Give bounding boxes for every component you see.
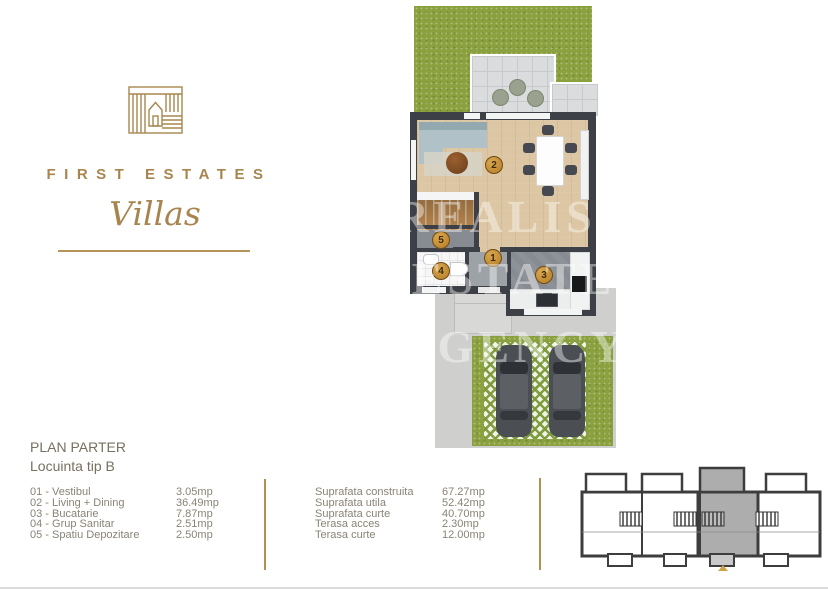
partition-vestibule-kitchen xyxy=(507,252,511,286)
plan-subtitle: Locuinta tip B xyxy=(30,457,126,476)
legend-label: 05 - Spatiu Depozitare xyxy=(30,529,139,541)
coffee-table xyxy=(446,152,468,174)
dining-table xyxy=(536,136,564,186)
sofa xyxy=(419,130,487,148)
stat-value: 12.00mp xyxy=(442,530,485,541)
dining-chair xyxy=(523,165,535,175)
window-bath xyxy=(422,287,446,293)
stove xyxy=(536,293,558,307)
car-windshield xyxy=(500,362,528,374)
car xyxy=(496,345,532,437)
brochure-page: FIRST ESTATES Villas PLAN PARTER Locuint… xyxy=(0,0,828,590)
stat-value: 52.42mp xyxy=(442,498,485,509)
plan-title-block: PLAN PARTER Locuinta tip B xyxy=(30,438,126,476)
dining-chair xyxy=(523,143,535,153)
car-roof xyxy=(500,374,528,409)
brand-name: FIRST ESTATES xyxy=(15,166,295,183)
unit-locator-diagram xyxy=(576,466,826,572)
legend-area: 36.49mp xyxy=(176,498,219,509)
car-windshield xyxy=(553,362,581,374)
terrace-sliding-door xyxy=(486,113,550,119)
plan-title: PLAN PARTER xyxy=(30,438,126,457)
dining-chair xyxy=(565,143,577,153)
room-badge-living: 2 xyxy=(485,156,503,174)
floor-plan: 2 1 3 4 5 REALIST ESTATE AGENCY xyxy=(408,4,620,456)
dining-chair xyxy=(542,186,554,196)
window-left xyxy=(411,140,416,180)
entry-step xyxy=(455,303,511,332)
window-kitchen xyxy=(524,309,582,315)
legend-row: 05 - Spatiu Depozitare 2.50mp xyxy=(30,530,265,541)
entry-door xyxy=(478,287,500,293)
brand-tagline: Villas xyxy=(15,194,295,233)
room-legend: 01 - Vestibul 3.05mp 02 - Living + Dinin… xyxy=(30,487,265,541)
first-estates-emblem-icon xyxy=(128,86,184,136)
pouf-seat xyxy=(527,90,544,107)
room-badge-bucatarie: 3 xyxy=(535,266,553,284)
oven xyxy=(572,276,587,292)
room-badge-grup-sanitar: 4 xyxy=(432,262,450,280)
pouf-seat xyxy=(492,89,509,106)
partition-stairs xyxy=(474,192,479,252)
dining-chair xyxy=(542,125,554,135)
column-divider xyxy=(264,479,266,570)
partition-storage xyxy=(417,225,479,229)
sofa-back xyxy=(419,122,487,130)
window-top xyxy=(464,113,480,119)
stat-row: Terasa curte 12.00mp xyxy=(315,530,545,541)
room-badge-spatiu-depozitare: 5 xyxy=(432,231,450,249)
room-badge-vestibul: 1 xyxy=(484,249,502,267)
sideboard xyxy=(580,130,589,200)
stat-label: Terasa curte xyxy=(315,529,376,541)
entry-terrace xyxy=(454,288,512,334)
car-rear-window xyxy=(500,411,528,420)
brand-underline xyxy=(58,250,250,252)
page-bottom-border xyxy=(0,587,828,589)
dining-chair xyxy=(565,165,577,175)
legend-area: 2.50mp xyxy=(176,530,213,541)
car xyxy=(549,345,585,437)
car-rear-window xyxy=(553,411,581,420)
pouf-seat xyxy=(509,79,526,96)
car-roof xyxy=(553,374,581,409)
surface-stats: Suprafata construita 67.27mp Suprafata u… xyxy=(315,487,545,541)
toilet xyxy=(450,262,468,276)
